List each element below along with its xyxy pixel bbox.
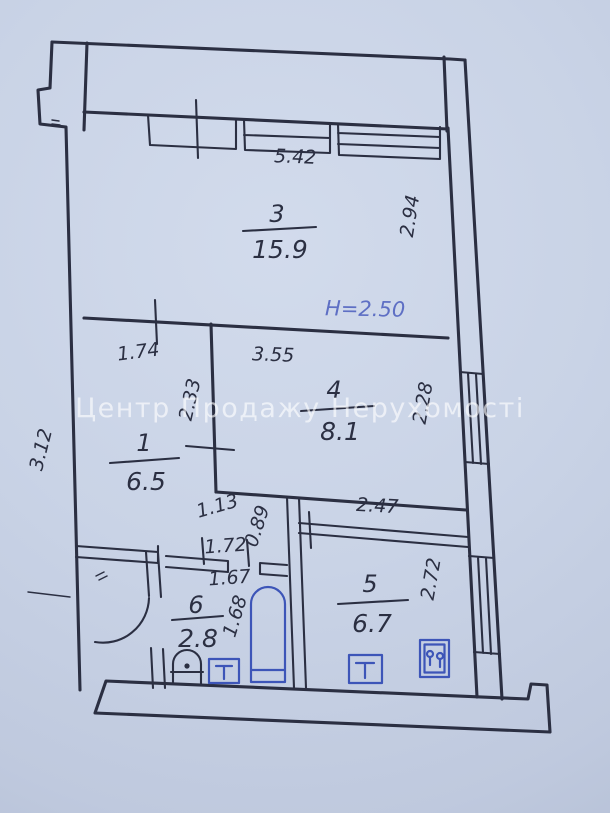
room-6-area: 2.8 xyxy=(178,624,218,653)
room-5-area: 6.7 xyxy=(352,609,392,638)
dim-bath-depth: 1.68 xyxy=(219,593,252,640)
dim-tick xyxy=(196,100,198,158)
bottom-plinth xyxy=(95,681,550,732)
stove xyxy=(420,640,449,677)
dim-174: 1.74 xyxy=(116,339,161,366)
dim-tick xyxy=(186,446,234,450)
floor-plan-photo: 3 15.9 4 8.1 1 6.5 5 6.7 6 2.8 5.42 2.94… xyxy=(0,0,610,813)
floor-plan-svg: 3 15.9 4 8.1 1 6.5 5 6.7 6 2.8 5.42 2.94… xyxy=(0,0,610,813)
dim-kitchen-width: 2.47 xyxy=(356,494,399,518)
room-5-label: 5 6.7 xyxy=(338,570,408,638)
dim-tick xyxy=(309,512,311,548)
watermark-text: Центр Продажу Нерухомості xyxy=(75,393,525,424)
dim-bath-172: 1.72 xyxy=(204,534,248,559)
bathtub xyxy=(251,587,285,682)
ceiling-height-note: H=2.50 xyxy=(325,296,406,321)
room-1-label: 1 6.5 xyxy=(110,429,179,496)
dim-tick xyxy=(155,300,157,344)
room-1-number: 1 xyxy=(136,429,151,457)
room-3-number: 3 xyxy=(269,200,284,228)
dim-bath-width: 1.67 xyxy=(208,566,252,591)
dim-kitchen-depth: 2.72 xyxy=(417,556,446,601)
room-3-label: 3 15.9 xyxy=(243,200,316,264)
toilet xyxy=(171,650,203,684)
dim-room4-width: 3.55 xyxy=(252,343,295,366)
dim-room3-depth: 2.94 xyxy=(396,193,424,238)
dim-top-width: 5.42 xyxy=(274,145,317,168)
room-6-number: 6 xyxy=(188,591,203,619)
room-6-label: 6 2.8 xyxy=(172,591,223,653)
room-1-area: 6.5 xyxy=(126,467,166,496)
room-5-number: 5 xyxy=(362,570,377,598)
balcony-window-wall xyxy=(84,100,448,159)
room-3-area: 15.9 xyxy=(252,235,308,264)
bathroom-sink xyxy=(209,659,239,683)
dim-hall-113: 1.13 xyxy=(194,490,241,523)
kitchen-sink xyxy=(349,655,382,683)
entry-door-swing xyxy=(95,598,149,643)
dim-room1-depth: 3.12 xyxy=(25,426,57,472)
